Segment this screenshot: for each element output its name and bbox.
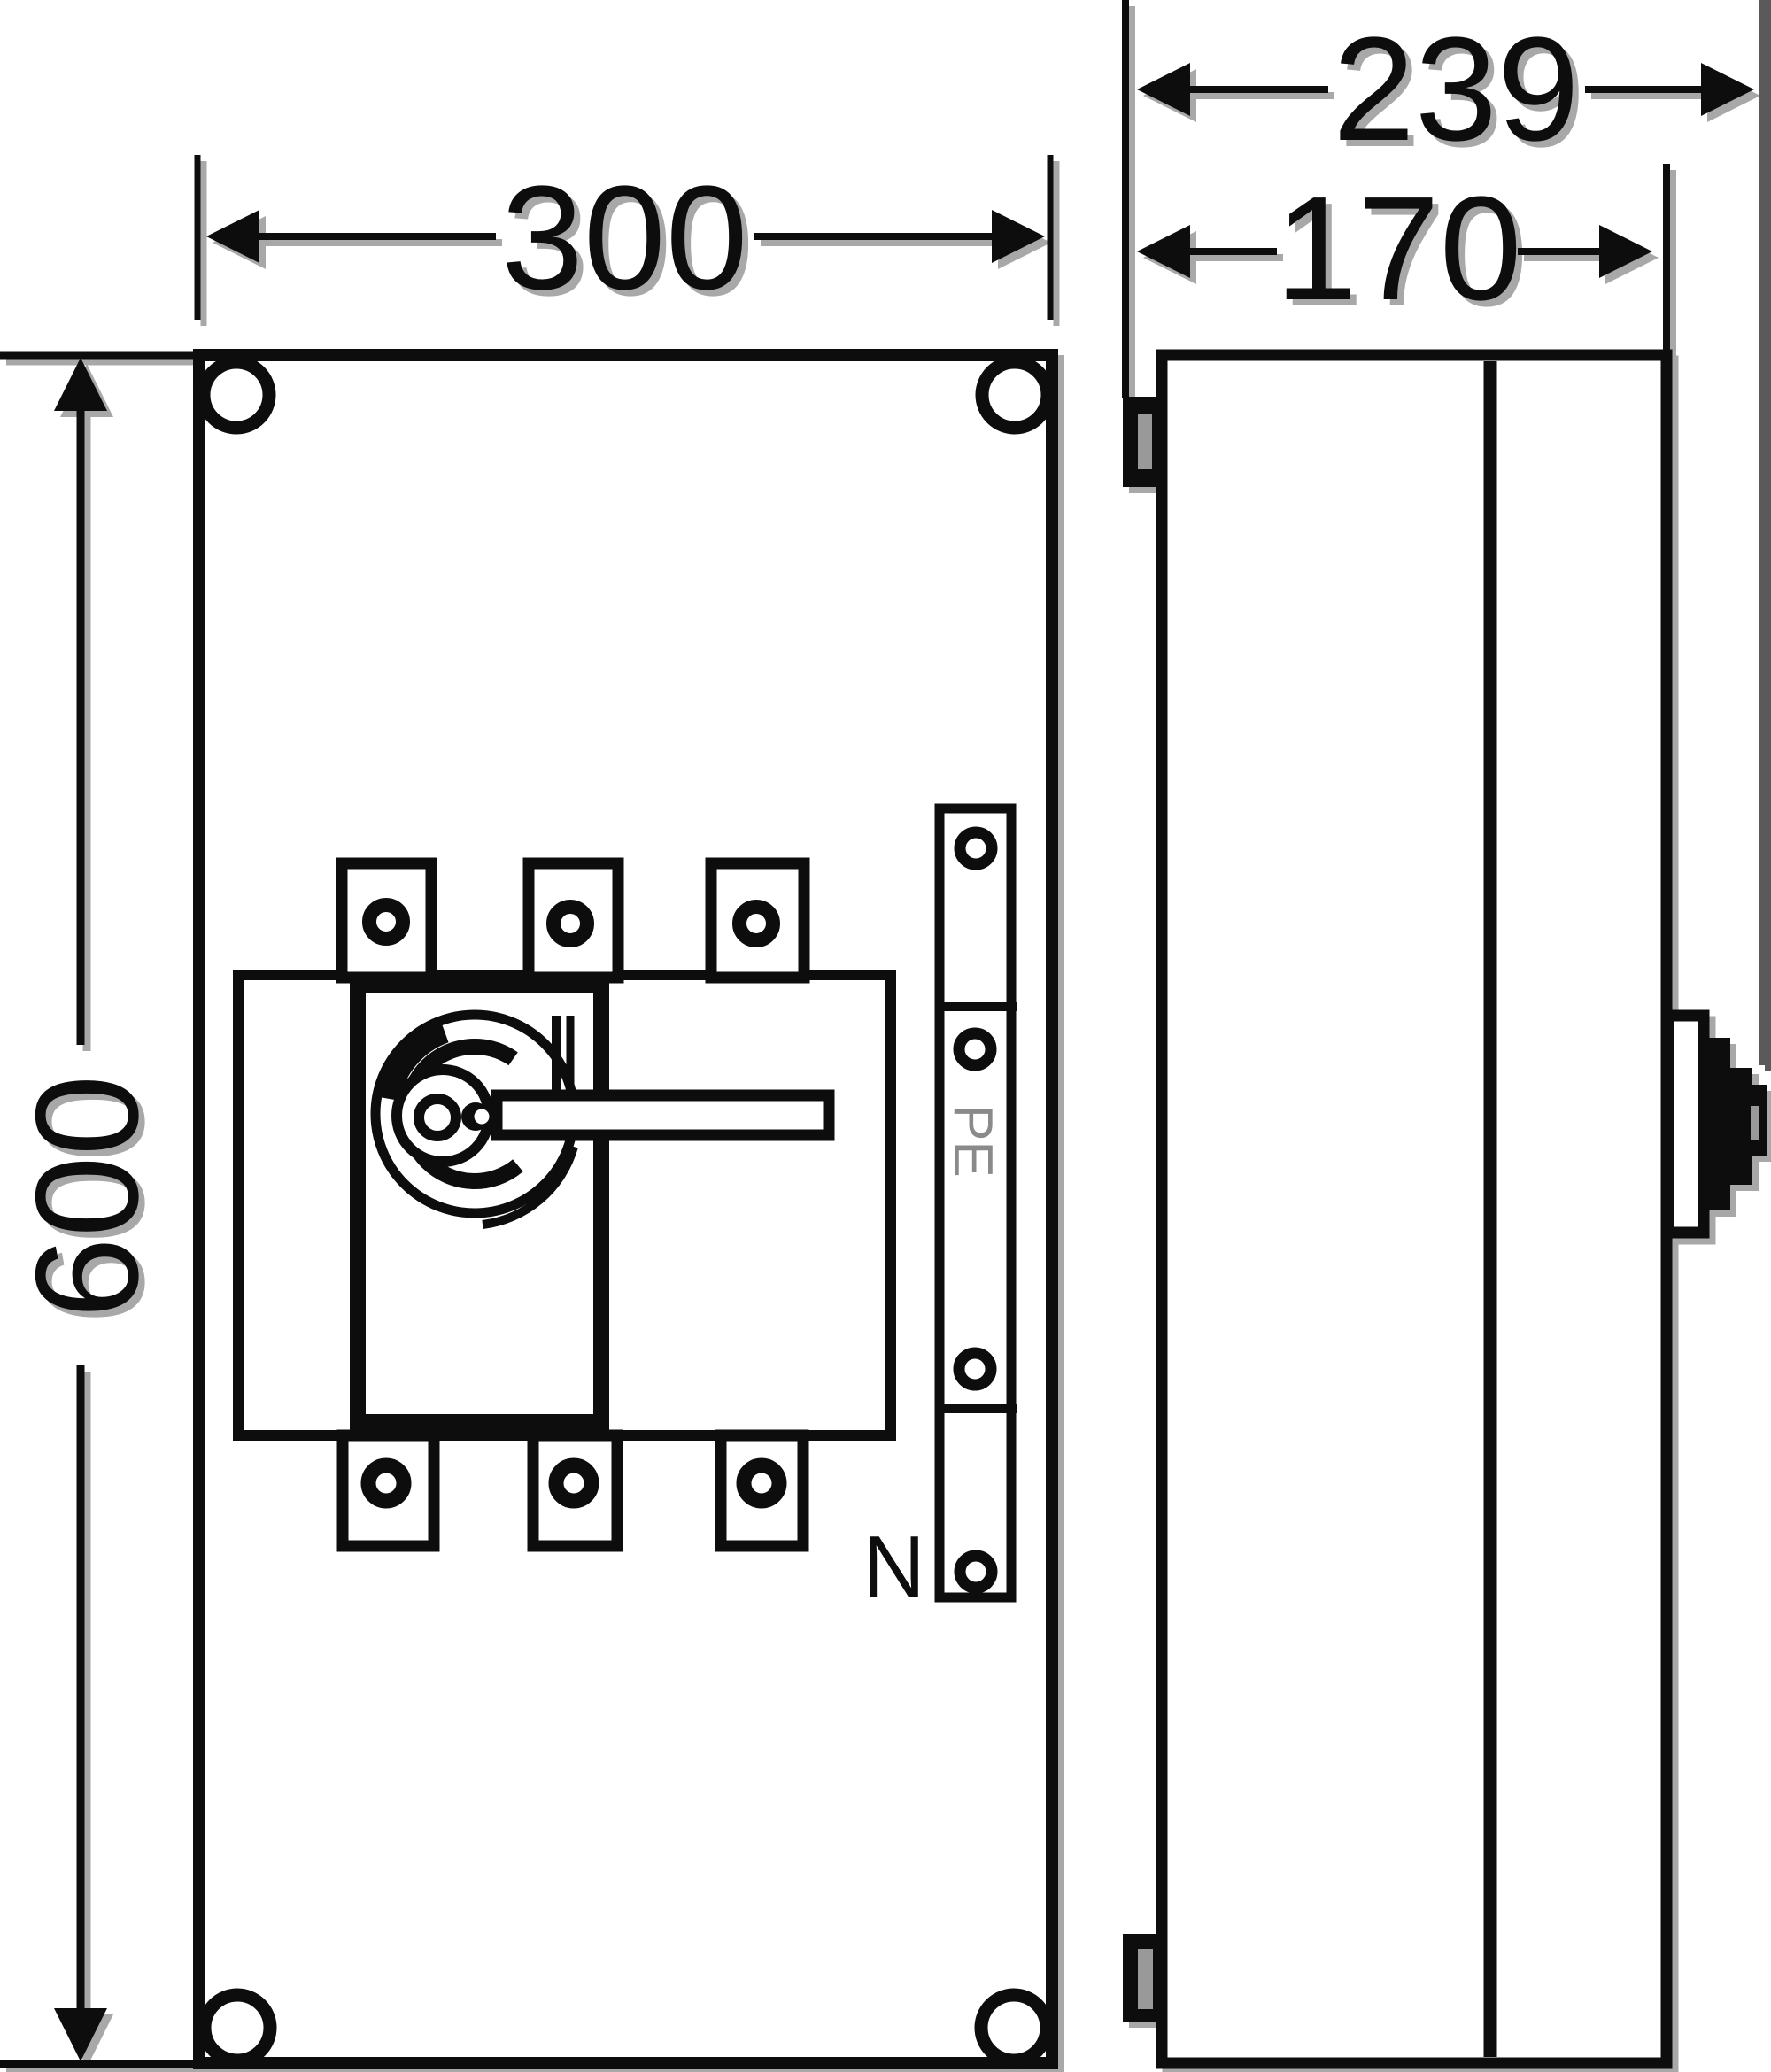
- svg-text:PE: PE: [942, 1104, 1003, 1178]
